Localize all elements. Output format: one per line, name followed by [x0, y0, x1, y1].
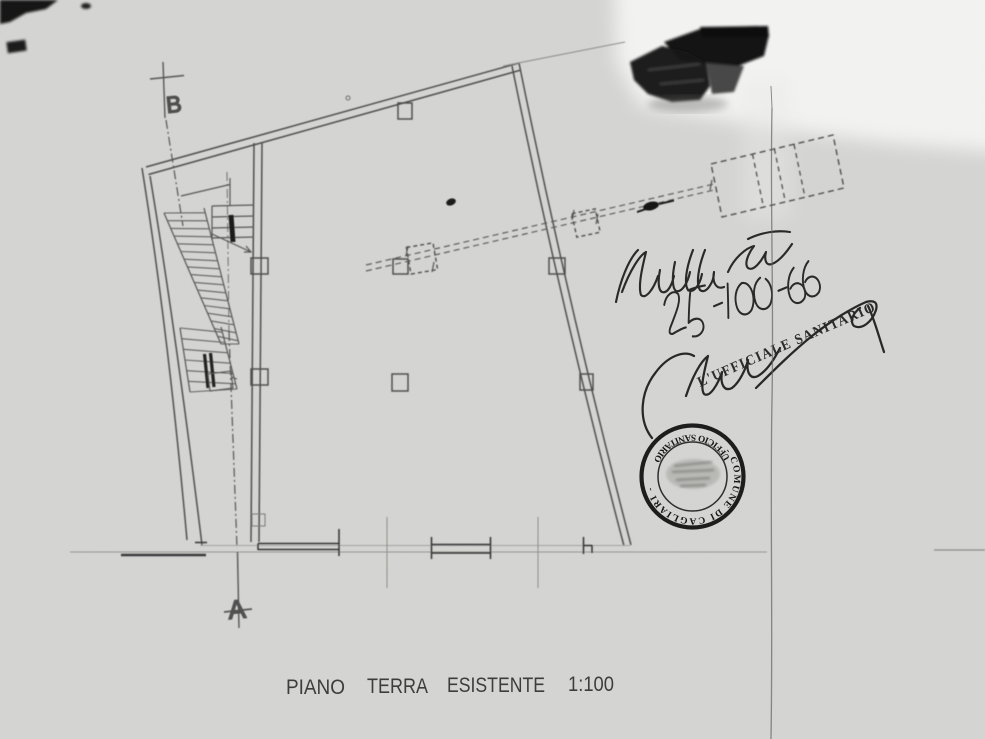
svg-text:PIANO: PIANO: [286, 676, 345, 699]
svg-text:ESISTENTE: ESISTENTE: [447, 674, 545, 697]
svg-text:TERRA: TERRA: [367, 675, 428, 698]
svg-text:A: A: [227, 594, 248, 625]
svg-text:B: B: [165, 91, 183, 118]
svg-text:1:100: 1:100: [568, 673, 614, 696]
